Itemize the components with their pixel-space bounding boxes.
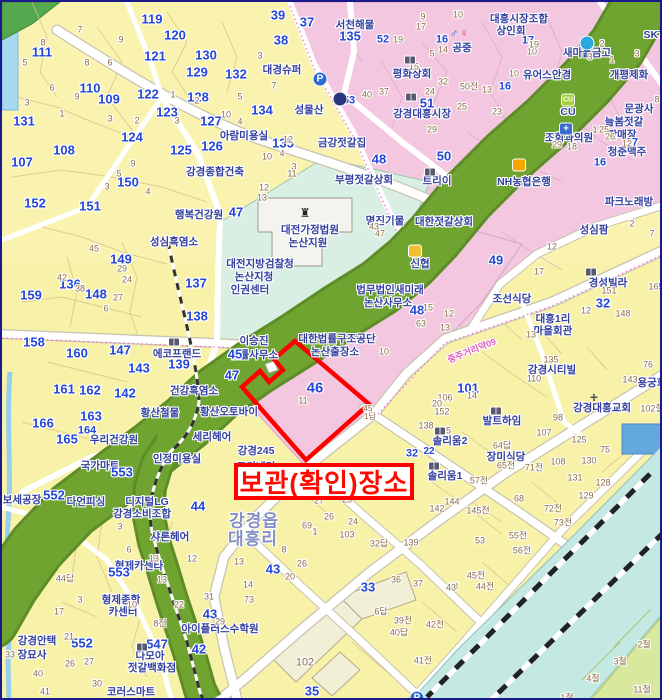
storage-location-text: 보관(확인)장소 xyxy=(240,463,409,500)
map-base-layer xyxy=(2,2,662,700)
storage-location-annotation: 보관(확인)장소 xyxy=(234,463,414,500)
map-canvas[interactable]: 서천해물대경슈퍼평화상회공중대흥시장조합상인회새마을금고유어스안경SKT개평제화… xyxy=(0,0,662,700)
pond xyxy=(622,424,662,454)
